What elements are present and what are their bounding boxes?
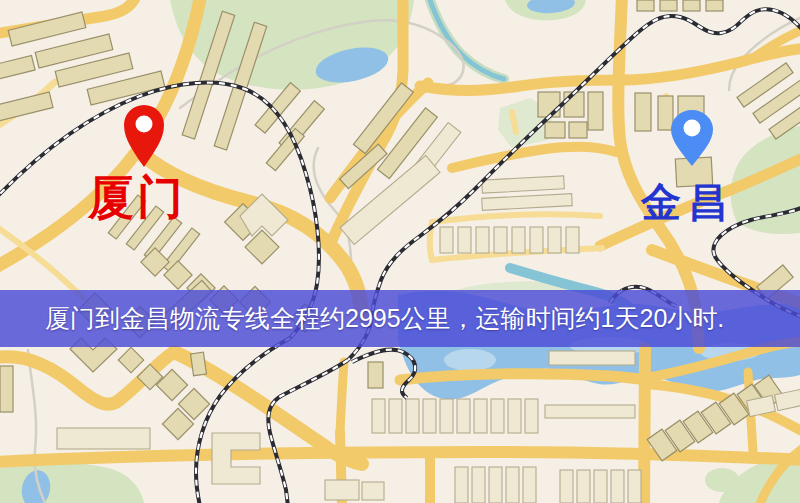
info-banner-text: 厦门到金昌物流专线全程约2995公里，运输时间约1天20小时.: [45, 290, 724, 347]
map-canvas[interactable]: [0, 0, 800, 503]
destination-label: 金昌: [641, 182, 735, 222]
origin-pin-icon[interactable]: [119, 101, 169, 169]
origin-label: 厦门: [88, 174, 186, 220]
map-screen: 厦门 金昌 厦门到金昌物流专线全程约2995公里，运输时间约1天20小时.: [0, 0, 800, 503]
destination-pin-icon[interactable]: [666, 108, 718, 168]
info-banner: 厦门到金昌物流专线全程约2995公里，运输时间约1天20小时.: [0, 290, 800, 347]
